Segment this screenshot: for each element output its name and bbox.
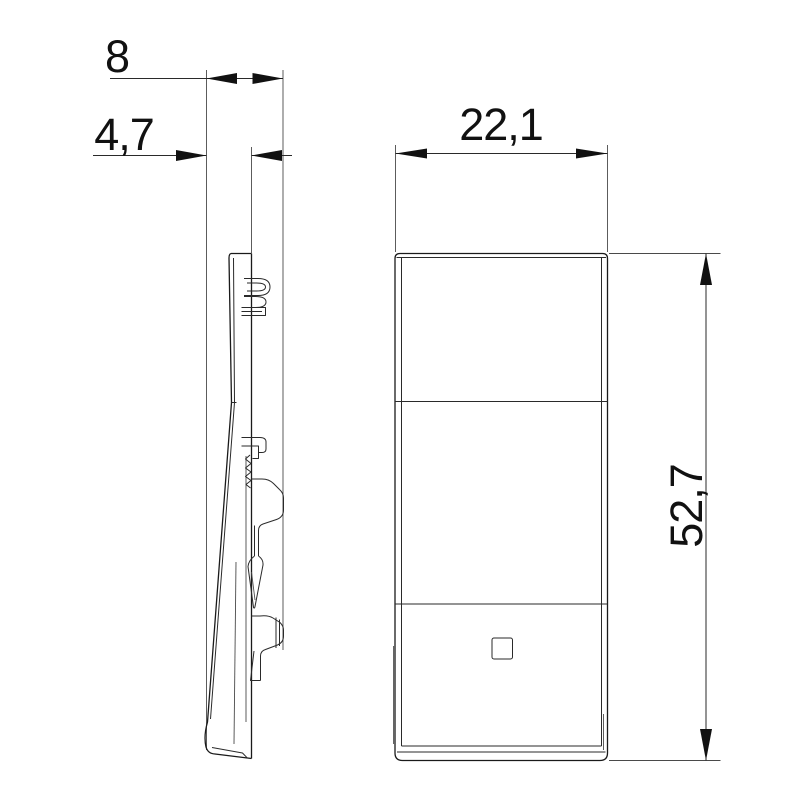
arrowhead-left xyxy=(396,149,428,159)
arrowhead-left xyxy=(176,150,207,161)
arrowhead-left xyxy=(207,73,238,84)
middle-flange xyxy=(242,438,267,453)
side-view-front-face xyxy=(205,254,251,759)
arrowhead-up xyxy=(700,254,712,286)
top-clip-tab-lower xyxy=(244,297,266,308)
arrowhead-right xyxy=(252,150,283,161)
lower-clip-cluster xyxy=(248,556,284,681)
arrowhead-down xyxy=(700,729,712,761)
front-view-outline xyxy=(395,254,608,761)
side-view: 8 4,7 xyxy=(93,31,292,759)
dim-width-label: 22,1 xyxy=(459,99,543,150)
side-view-bottom-lip-inner xyxy=(212,748,248,759)
dim-depth-total-label: 8 xyxy=(105,31,129,82)
middle-clip-cluster xyxy=(242,438,284,557)
technical-drawing: 8 4,7 xyxy=(0,0,800,800)
snap-clip-lower xyxy=(252,616,284,681)
top-clip-base xyxy=(242,308,266,316)
pawl-hook xyxy=(248,556,263,608)
dim-height-label: 52,7 xyxy=(661,464,712,548)
top-clip-tab-outer xyxy=(244,279,270,296)
dim-depth-body-label: 4,7 xyxy=(94,109,154,160)
middle-flange-hook xyxy=(253,453,259,459)
side-view-front-face-inner xyxy=(211,258,235,719)
technical-drawing-page: 8 4,7 xyxy=(0,0,800,800)
arrowhead-right xyxy=(253,73,284,84)
front-view: 22,1 52,7 xyxy=(394,99,721,761)
indicator-window xyxy=(492,638,513,659)
top-clip xyxy=(242,279,271,316)
snap-clip-upper xyxy=(252,479,284,556)
side-view-skirt-line xyxy=(234,562,236,744)
arrowhead-right xyxy=(576,149,608,159)
top-clip-tab-inner xyxy=(247,283,266,291)
